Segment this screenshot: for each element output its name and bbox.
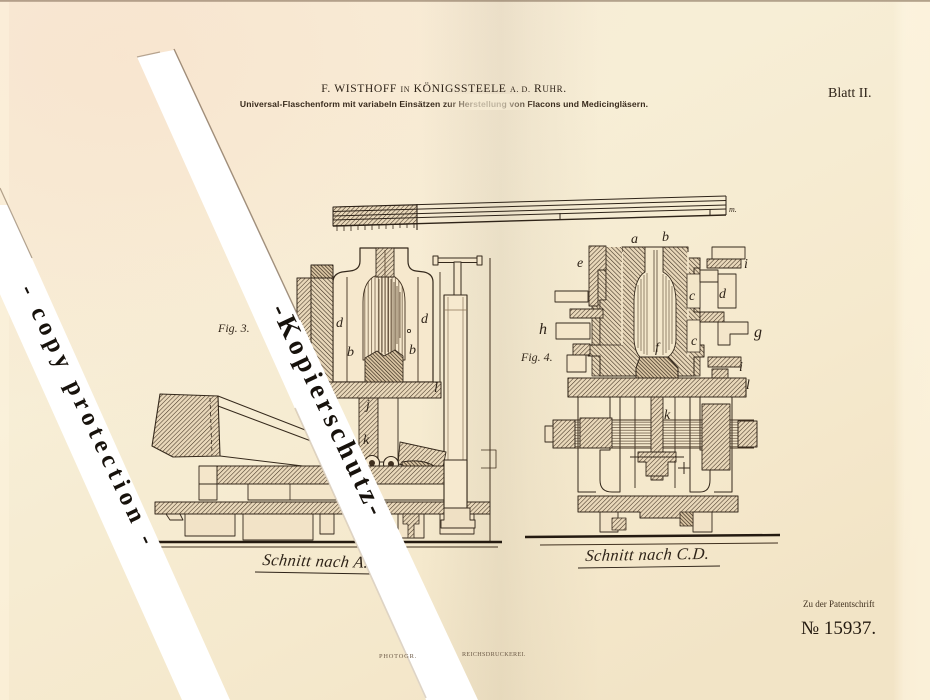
svg-text:d: d — [719, 287, 727, 302]
svg-text:a: a — [631, 232, 638, 247]
svg-text:h: h — [539, 321, 547, 338]
svg-text:d: d — [336, 316, 344, 331]
svg-text:b: b — [662, 230, 669, 245]
svg-text:№ 15937.: № 15937. — [801, 618, 876, 639]
svg-text:i: i — [744, 257, 748, 272]
svg-text:Schnitt nach C.D.: Schnitt nach C.D. — [585, 544, 711, 565]
svg-text:Zu der Patentschrift: Zu der Patentschrift — [803, 599, 875, 609]
svg-text:k: k — [664, 408, 671, 423]
svg-text:Fig. 4.: Fig. 4. — [520, 350, 553, 364]
svg-text:PHOTOGR.: PHOTOGR. — [379, 653, 417, 660]
svg-text:i: i — [739, 360, 743, 375]
svg-text:c: c — [689, 289, 696, 304]
svg-text:l: l — [746, 378, 750, 393]
svg-text:g: g — [754, 324, 762, 341]
svg-text:Schnitt nach A.: Schnitt nach A. — [261, 550, 369, 572]
svg-text:F. WISTHOFF IN KÖNIGSSTEELE A.: F. WISTHOFF IN KÖNIGSSTEELE A. D. RUHR. — [321, 81, 566, 95]
svg-text:m.: m. — [729, 205, 737, 214]
svg-text:e: e — [577, 256, 583, 271]
svg-text:REICHSDRUCKEREI.: REICHSDRUCKEREI. — [462, 651, 526, 658]
svg-text:d: d — [421, 312, 429, 327]
svg-text:l: l — [434, 381, 438, 396]
svg-text:Fig. 3.: Fig. 3. — [217, 321, 250, 335]
svg-text:b: b — [409, 343, 416, 358]
svg-text:c: c — [691, 334, 698, 349]
svg-text:b: b — [347, 345, 354, 360]
svg-text:Blatt II.: Blatt II. — [828, 86, 872, 101]
